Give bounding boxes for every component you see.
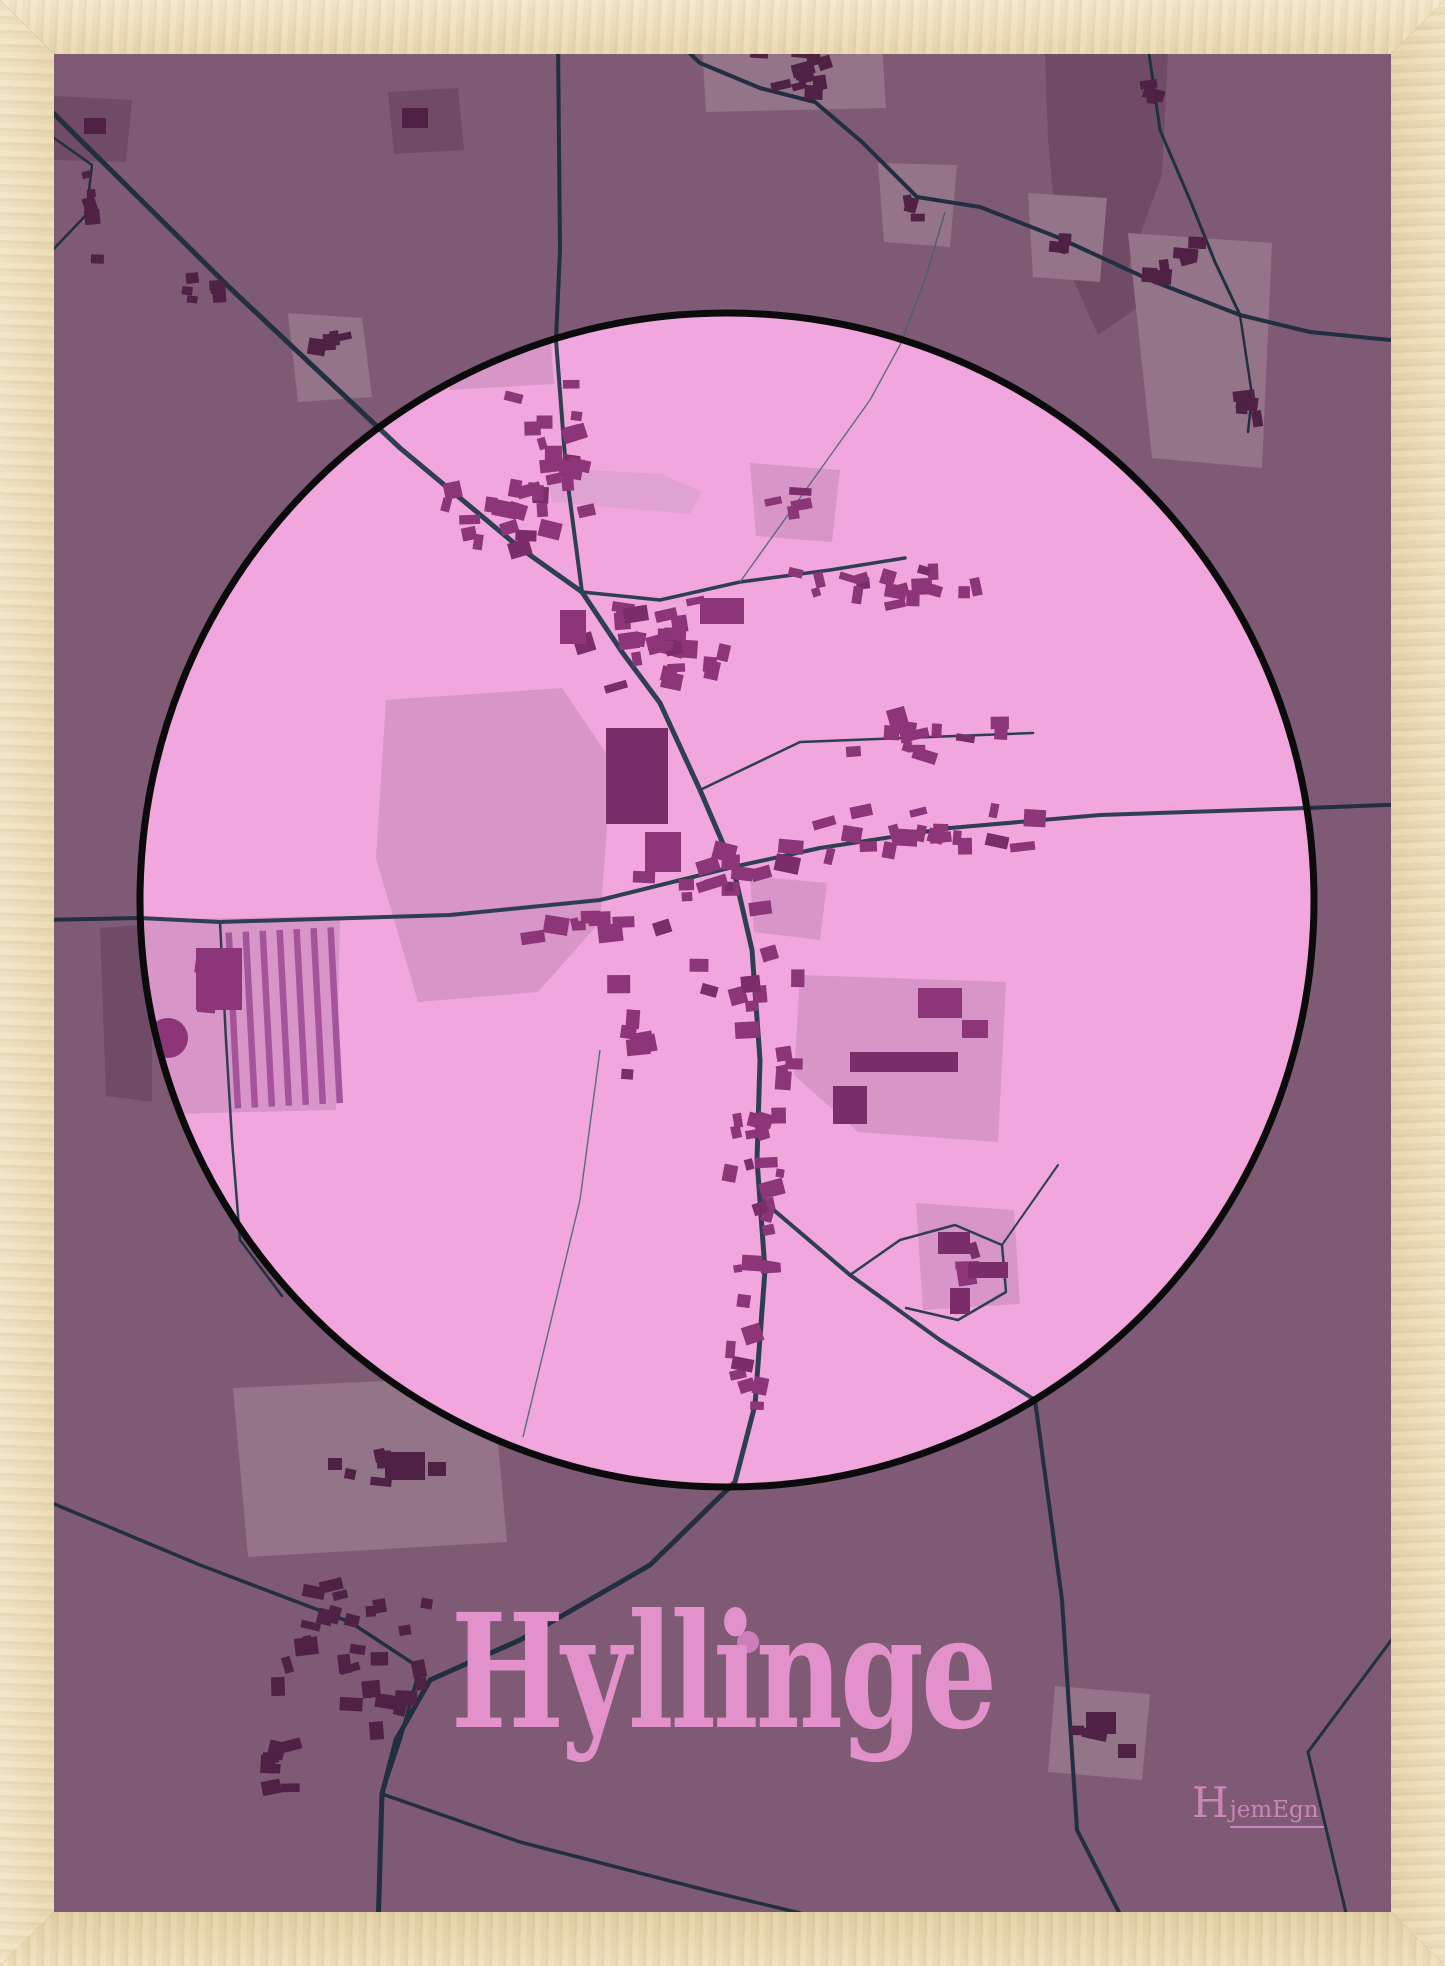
poster-title: Hyllinge bbox=[173, 1594, 1271, 1752]
frame-left bbox=[0, 0, 54, 1966]
frame-right bbox=[1391, 0, 1445, 1966]
frame-top bbox=[0, 0, 1445, 54]
frame-bottom bbox=[0, 1912, 1445, 1966]
brand-rest: jemEgn bbox=[1230, 1799, 1324, 1828]
brand-logo: HjemEgn bbox=[1192, 1782, 1324, 1828]
brand-initial: H bbox=[1192, 1782, 1229, 1824]
map-poster: Hyllinge HjemEgn bbox=[0, 0, 1445, 1966]
